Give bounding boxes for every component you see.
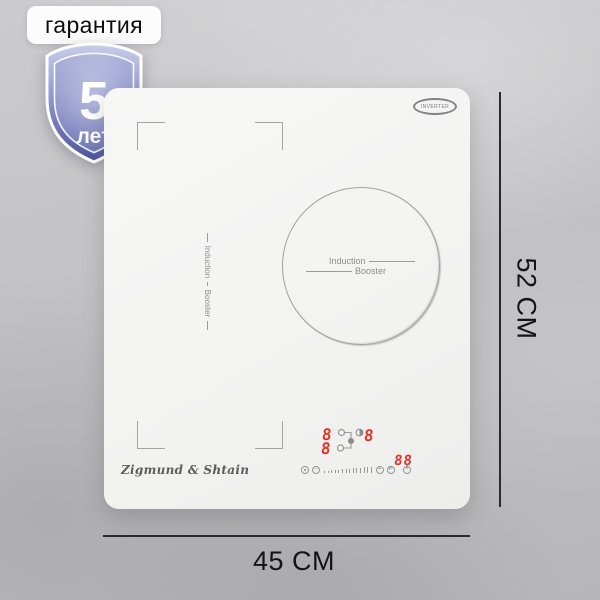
center-zone-label-booster: Booster bbox=[355, 266, 386, 276]
round-cooking-zone: Induction Booster bbox=[282, 187, 440, 345]
timer-icon[interactable] bbox=[301, 466, 309, 474]
decor-line bbox=[207, 282, 208, 285]
induction-cooktop: INVERTER Induction Booster Induction Boo… bbox=[104, 88, 470, 509]
decor-line bbox=[207, 233, 208, 242]
warranty-label-card: гарантия bbox=[27, 6, 161, 44]
center-zone-label: Induction Booster bbox=[305, 256, 417, 276]
width-dimension-label: 45 CM bbox=[244, 546, 344, 577]
zone-corner-mark bbox=[255, 421, 283, 449]
touch-control-panel[interactable]: − + P bbox=[301, 465, 421, 475]
power-slider-ticks[interactable] bbox=[324, 467, 372, 473]
brand-logo: Zigmund & Shtain bbox=[121, 463, 249, 477]
height-dimension-line bbox=[499, 92, 501, 507]
height-dimension-label: 52 CM bbox=[511, 251, 542, 347]
power-icon[interactable] bbox=[403, 466, 411, 474]
warranty-label: гарантия bbox=[45, 12, 143, 39]
width-dimension-line bbox=[103, 535, 470, 537]
decor-line bbox=[369, 261, 415, 262]
left-zone-label-induction: Induction bbox=[203, 246, 212, 278]
decor-line bbox=[207, 321, 208, 330]
left-zone-label-booster: Booster bbox=[203, 290, 212, 318]
left-zone-label: Induction Booster bbox=[201, 233, 214, 330]
plus-icon[interactable]: + bbox=[376, 466, 384, 474]
zone-corner-mark bbox=[137, 421, 165, 449]
zone-selector-diagram bbox=[335, 428, 365, 454]
booster-p-icon[interactable]: P bbox=[387, 466, 395, 474]
zone-corner-mark bbox=[137, 122, 165, 150]
zone-corner-mark bbox=[255, 122, 283, 150]
inverter-logo-text: INVERTER bbox=[421, 104, 449, 110]
minus-icon[interactable]: − bbox=[312, 466, 320, 474]
center-zone-label-induction: Induction bbox=[329, 256, 366, 266]
zone-power-display-3: 8 bbox=[320, 439, 332, 458]
inverter-logo: INVERTER bbox=[413, 98, 457, 115]
decor-line bbox=[306, 271, 352, 272]
